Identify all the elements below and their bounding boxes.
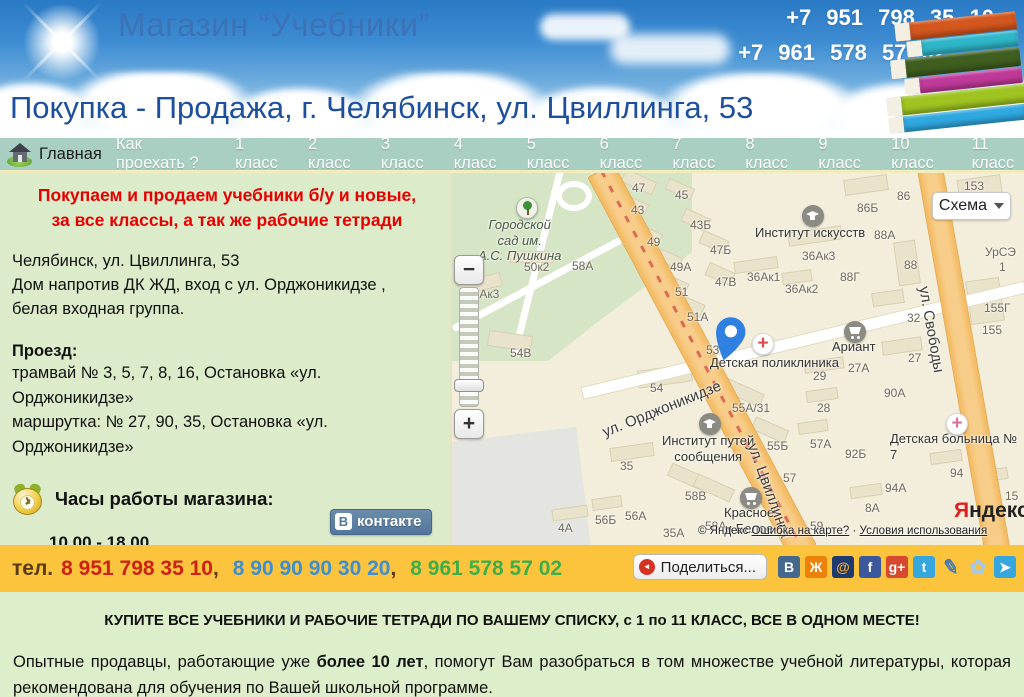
page: Магазин “Учебники” +7 951 798 35 10 +7 9…	[0, 0, 1024, 697]
address-line: Челябинск, ул. Цвиллинга, 53	[12, 250, 440, 274]
map-poi-icon	[699, 413, 721, 435]
header: Магазин “Учебники” +7 951 798 35 10 +7 9…	[0, 0, 1024, 138]
vk-icon: В	[335, 513, 352, 530]
alarm-clock-icon	[12, 484, 43, 515]
transit-title: Проезд:	[12, 342, 440, 361]
transit-line: Орджоникидзе»	[12, 435, 440, 460]
transit-block: трамвай № 3, 5, 7, 8, 16, Остановка «ул.…	[12, 361, 440, 460]
map-copyright: © Яндекс Ошибка на карте? · Условия испо…	[698, 525, 987, 537]
phone-bar: тел. 8 951 798 35 10 , 8 90 90 90 30 20 …	[0, 545, 1024, 592]
bottom-paragraph: Опытные продавцы, работающие уже более 1…	[13, 650, 1011, 697]
chevron-down-icon	[994, 203, 1004, 209]
nav-item[interactable]: 3 класс	[381, 135, 427, 173]
zoom-out-button[interactable]: −	[454, 255, 484, 285]
phone-link-3[interactable]: 8 961 578 57 02	[410, 557, 562, 581]
phone-link-2[interactable]: 8 90 90 90 30 20	[233, 557, 391, 581]
social-icon[interactable]: Ж	[805, 556, 827, 578]
address-line: Дом напротив ДК ЖД, вход с ул. Орджоники…	[12, 274, 440, 298]
address-line: белая входная группа.	[12, 298, 440, 322]
map-poi-icon	[802, 205, 824, 227]
share-icon: ◄	[639, 559, 655, 575]
header-subtitle: Покупка - Продажа, г. Челябинск, ул. Цви…	[10, 90, 753, 126]
social-icon[interactable]: t	[913, 556, 935, 578]
zoom-slider-handle[interactable]	[454, 379, 484, 392]
social-icon[interactable]: ➤	[994, 556, 1016, 578]
bottom-headline: КУПИТЕ ВСЕ УЧЕБНИКИ И РАБОЧИЕ ТЕТРАДИ ПО…	[13, 612, 1011, 629]
map-poi-icon	[740, 487, 762, 509]
share-widget: ◄ Поделиться... ВЖ@fg+t✎✿➤	[633, 554, 1016, 580]
promo-line-1: Покупаем и продаем учебники б/у и новые,	[12, 183, 442, 208]
tel-label: тел.	[12, 557, 53, 581]
social-icon[interactable]: g+	[886, 556, 908, 578]
share-button-label: Поделиться...	[661, 559, 756, 576]
vk-button[interactable]: В контакте	[330, 509, 432, 535]
nav-item[interactable]: 6 класс	[600, 135, 646, 173]
nav-item[interactable]: Как проехать ?	[116, 135, 208, 173]
home-icon	[6, 142, 33, 167]
main-nav: Главная Как проехать ?1 класс2 класс3 кл…	[0, 138, 1024, 170]
map-error-link[interactable]: Ошибка на карте?	[752, 525, 850, 537]
map-poi-icon: +	[946, 413, 968, 435]
map-mode-button[interactable]: Схема	[932, 192, 1011, 220]
map-mode-label: Схема	[939, 197, 987, 215]
address-block: Челябинск, ул. Цвиллинга, 53Дом напротив…	[12, 250, 440, 322]
promo-text: Покупаем и продаем учебники б/у и новые,…	[12, 183, 442, 232]
phone-link-1[interactable]: 8 951 798 35 10	[61, 557, 213, 581]
transit-line: маршрутка: № 27, 90, 35, Остановка «ул.	[12, 410, 440, 435]
nav-item[interactable]: 7 класс	[673, 135, 719, 173]
social-icon[interactable]: ✎	[938, 554, 963, 579]
site-title: Магазин “Учебники”	[118, 6, 430, 44]
bottom-section: КУПИТЕ ВСЕ УЧЕБНИКИ И РАБОЧИЕ ТЕТРАДИ ПО…	[0, 592, 1024, 697]
map-poi-icon	[516, 197, 538, 219]
separator: ·	[853, 525, 857, 537]
vk-button-label: контакте	[357, 513, 421, 530]
share-button[interactable]: ◄ Поделиться...	[633, 554, 767, 580]
promo-line-2: за все классы, а так же рабочие тетради	[12, 208, 442, 233]
yandex-map[interactable]: 47454343Б4947Б49А47В5151А5350к258А58Ак35…	[450, 173, 1024, 545]
social-icon[interactable]: @	[832, 556, 854, 578]
map-poi-icon	[844, 321, 866, 343]
terms-link[interactable]: Условия использования	[860, 525, 988, 537]
social-icon[interactable]: ✿	[967, 556, 989, 578]
nav-item[interactable]: 9 класс	[818, 135, 864, 173]
yandex-logo: Яндекс	[954, 499, 1024, 523]
nav-item[interactable]: 2 класс	[308, 135, 354, 173]
transit-line: Орджоникидзе»	[12, 386, 440, 411]
nav-item[interactable]: 5 класс	[527, 135, 573, 173]
nav-item[interactable]: 8 класс	[745, 135, 791, 173]
nav-item[interactable]: 1 класс	[235, 135, 281, 173]
sun-image	[22, 2, 102, 82]
hours-title: Часы работы магазина:	[55, 488, 274, 510]
nav-item[interactable]: 4 класс	[454, 135, 500, 173]
transit-line: трамвай № 3, 5, 7, 8, 16, Остановка «ул.	[12, 361, 440, 386]
cloud-small	[610, 34, 730, 64]
info-panel: Покупаем и продаем учебники б/у и новые,…	[0, 173, 450, 545]
zoom-in-button[interactable]: +	[454, 409, 484, 439]
social-icon[interactable]: f	[859, 556, 881, 578]
social-icons: ВЖ@fg+t✎✿➤	[778, 556, 1016, 578]
nav-items: Как проехать ?1 класс2 класс3 класс4 кла…	[116, 135, 1024, 173]
nav-item-home[interactable]: Главная	[39, 145, 102, 164]
nav-item[interactable]: 11 класс	[972, 135, 1024, 173]
nav-item[interactable]: 10 класс	[891, 135, 944, 173]
copyright-text: © Яндекс	[698, 525, 748, 537]
content-row: Покупаем и продаем учебники б/у и новые,…	[0, 170, 1024, 545]
map-poi-icon: +	[752, 333, 774, 355]
books-stack-image	[878, 11, 1024, 138]
social-icon[interactable]: В	[778, 556, 800, 578]
